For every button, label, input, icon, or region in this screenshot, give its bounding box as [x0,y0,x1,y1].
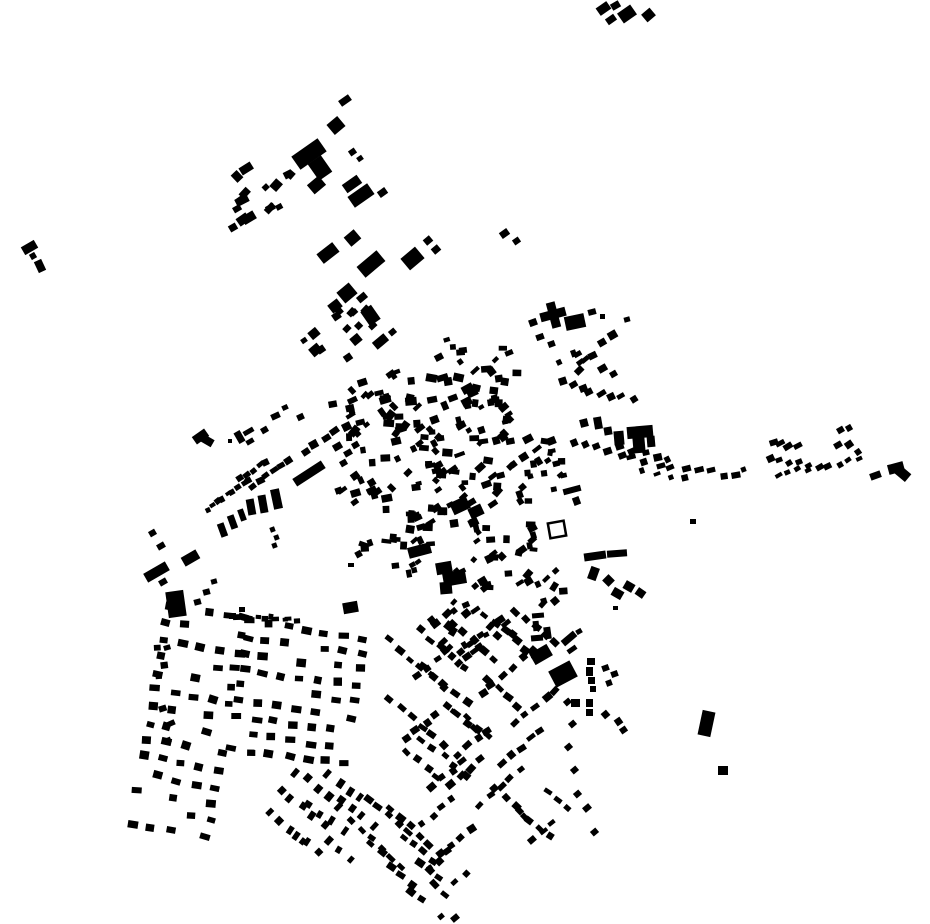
building-footprint-map [0,0,930,924]
map-canvas [0,0,930,924]
